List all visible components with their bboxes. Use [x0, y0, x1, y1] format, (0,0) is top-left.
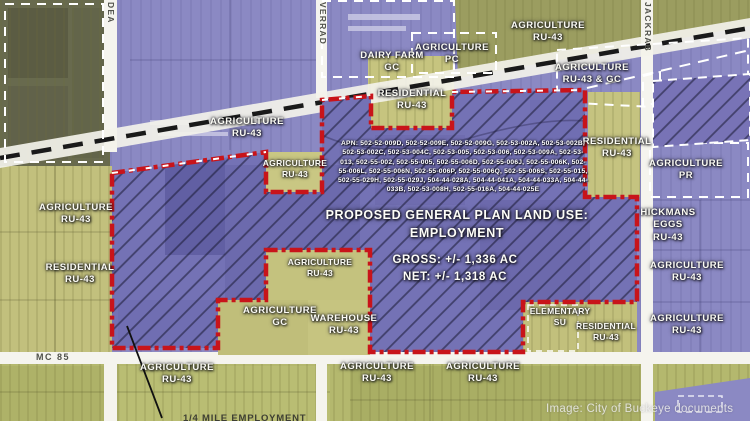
zone-label: AGRICULTURERU-43	[263, 158, 328, 180]
proposal-title: PROPOSED GENERAL PLAN LAND USE: EMPLOYME…	[326, 207, 589, 242]
zone-label: RESIDENTIALRU-43	[378, 88, 447, 113]
zone-label: AGRICULTURERU-43	[650, 260, 724, 285]
zone-label: RESIDENTIALRU-43	[46, 262, 115, 287]
hatched-pocket-top-right	[653, 74, 750, 147]
road-label-vertical-right: JACKRAB	[643, 2, 653, 52]
zone-label: AGRICULTURERU-43	[340, 361, 414, 386]
zone-label: HICKMANSEGGSRU-43	[640, 207, 695, 244]
zone-label: WAREHOUSERU-43	[311, 313, 378, 338]
image-credit-watermark: Image: City of Buckeye documents	[546, 403, 733, 415]
road-label-vertical-left: DEA	[106, 2, 116, 24]
zone-label: AGRICULTURERU-43	[446, 361, 520, 386]
road-label-vertical-center: VERRAD	[318, 2, 328, 45]
zone-label: AGRICULTUREPC	[415, 42, 489, 67]
zone-label: AGRICULTURERU-43	[288, 257, 353, 279]
zone-label: AGRICULTURERU-43	[39, 202, 113, 227]
zone-label: AGRICULTUREGC	[243, 305, 317, 330]
zone-label: RESIDENTIALRU-43	[583, 136, 652, 161]
zone-label: AGRICULTURERU-43 & GC	[555, 62, 629, 87]
proposal-acreage: GROSS: +/- 1,336 AC NET: +/- 1,318 AC	[392, 252, 517, 285]
zoning-map: DEA VERRAD JACKRAB MC 85 AGRICULTURERU-4…	[0, 0, 750, 421]
apn-list: APN: 502-52-009D, 502-52-009E, 502-52-00…	[336, 139, 590, 195]
zone-label: DAIRY FARMGC	[360, 50, 424, 75]
zone-label: AGRICULTURERU-43	[650, 313, 724, 338]
callout-label: 1/4 MILE EMPLOYMENT	[183, 413, 306, 421]
zone-label: AGRICULTURERU-43	[140, 362, 214, 387]
gross-acreage: GROSS: +/- 1,336 AC	[392, 252, 517, 269]
zone-fill-yellow-left	[0, 166, 112, 354]
net-acreage: NET: +/- 1,318 AC	[392, 269, 517, 286]
road-label-mc85: MC 85	[36, 352, 70, 362]
zone-label: AGRICULTURERU-43	[511, 20, 585, 45]
zone-label: AGRICULTUREPR	[649, 158, 723, 183]
zone-label: AGRICULTURERU-43	[210, 116, 284, 141]
zone-label: RESIDENTIALRU-43	[576, 321, 636, 343]
